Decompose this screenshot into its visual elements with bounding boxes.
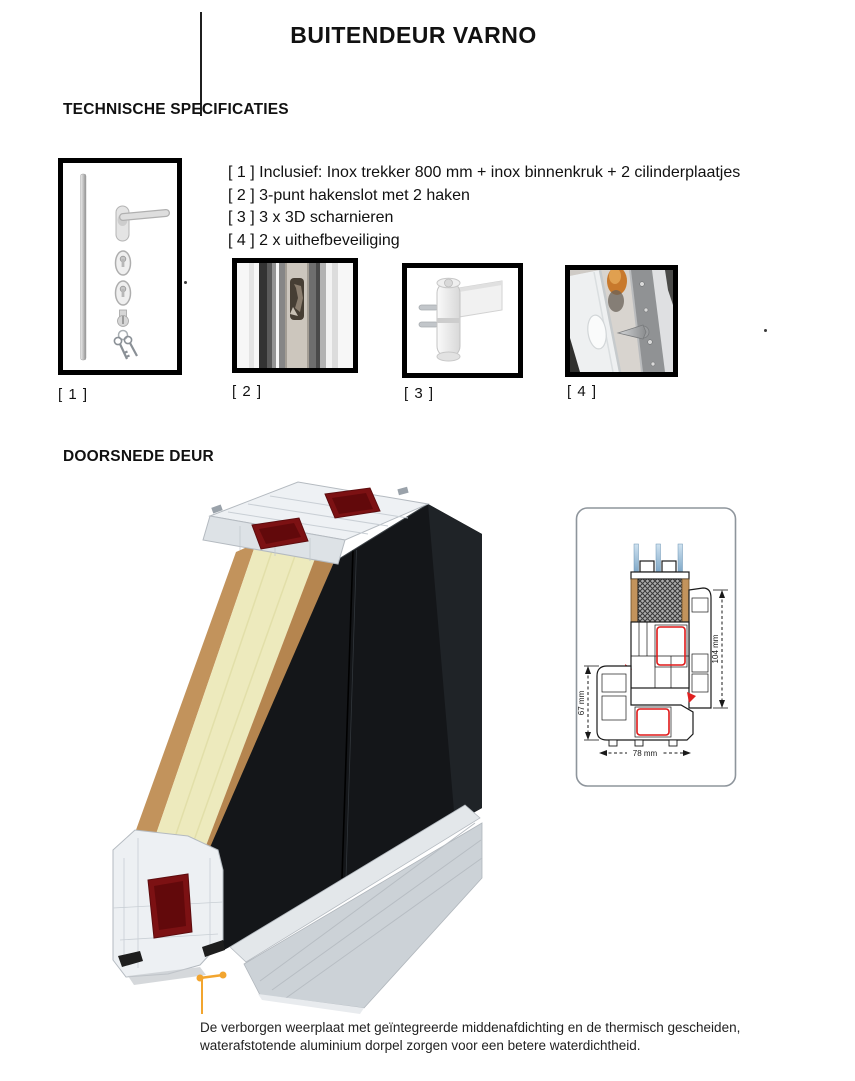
cross-section-heading: DOORSNEDE DEUR [63,448,214,466]
figure-3-label: [ 3 ] [404,385,434,402]
spec-item-4: [ 4 ] 2 x uithefbeveiliging [228,230,740,253]
figure-1-label: [ 1 ] [58,386,88,403]
hook-lock-image [237,263,353,368]
figure-3-box [402,263,523,378]
caption-line1: De verborgen weerplaat met geïntegreerde… [200,1019,740,1037]
figure-2-label: [ 2 ] [232,383,262,400]
figure-4-label: [ 4 ] [567,383,597,400]
dot-artifact [184,281,187,284]
dim-right-label: 104 mm [711,634,720,663]
figure-1-box [58,158,182,375]
page-title: BUITENDEUR VARNO [0,22,841,49]
figure-4-box [565,265,678,377]
spec-item-2: [ 2 ] 3-punt hakenslot met 2 haken [228,185,740,208]
figure-2-box [232,258,358,373]
profile-dimension-diagram: 104 mm 67 mm 78 mm [575,506,737,793]
hardware-set-image [63,163,177,370]
spec-item-1: [ 1 ] Inclusief: Inox trekker 800 mm + i… [228,162,740,185]
caption-line2: waterafstotende aluminium dorpel zorgen … [200,1037,740,1055]
caption: De verborgen weerplaat met geïntegreerde… [200,1019,740,1054]
dot-artifact [764,329,767,332]
door-cross-section-render [110,478,490,1023]
page: BUITENDEUR VARNO TECHNISCHE SPECIFICATIE… [0,0,855,1081]
specs-heading: TECHNISCHE SPECIFICATIES [63,101,289,119]
hinge-image [407,268,518,373]
dim-bottom-label: 78 mm [633,749,658,758]
anti-lift-pin-image [570,270,673,372]
spec-list: [ 1 ] Inclusief: Inox trekker 800 mm + i… [228,162,740,252]
dim-left-label: 67 mm [577,690,586,715]
spec-item-3: [ 3 ] 3 x 3D scharnieren [228,207,740,230]
